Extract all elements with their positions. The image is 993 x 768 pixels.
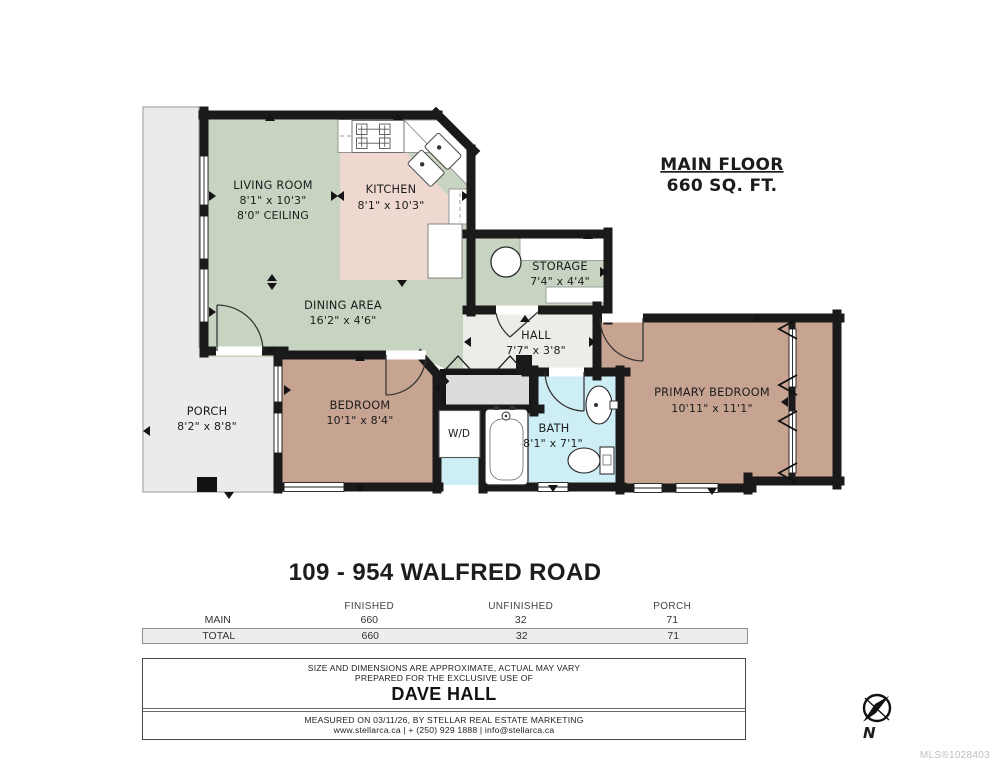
floorplan-drawing: LIVING ROOM 8'1" x 10'3" 8'0" CEILING KI… bbox=[0, 0, 993, 555]
mls-watermark: MLS®1028403 bbox=[920, 750, 990, 761]
primary-bedroom-dims: 10'11" x 11'1" bbox=[671, 402, 752, 415]
porch-label: PORCH bbox=[187, 405, 228, 418]
prepared-for-box: SIZE AND DIMENSIONS ARE APPROXIMATE, ACT… bbox=[142, 658, 746, 740]
row-label: TOTAL bbox=[143, 630, 295, 643]
prepared-for-text: PREPARED FOR THE EXCLUSIVE USE OF bbox=[143, 673, 745, 683]
table-row-main: MAIN 660 32 71 bbox=[142, 614, 748, 627]
cell-total-unfinished: 32 bbox=[446, 630, 598, 643]
dining-area-dims: 16'2" x 4'6" bbox=[309, 314, 376, 327]
floor-area: 660 SQ. FT. bbox=[667, 176, 778, 196]
area-table-header: FINISHED UNFINISHED PORCH bbox=[142, 600, 748, 613]
page-title: 109 - 954 WALFRED ROAD bbox=[142, 559, 748, 587]
contact-text: www.stellarca.ca | + (250) 929 1888 | in… bbox=[143, 725, 745, 735]
floorplan-page: LIVING ROOM 8'1" x 10'3" 8'0" CEILING KI… bbox=[0, 0, 993, 768]
storage-label: STORAGE bbox=[532, 260, 588, 273]
living-room-ceiling: 8'0" CEILING bbox=[237, 209, 309, 222]
cell-total-finished: 660 bbox=[295, 630, 447, 643]
floor-title: MAIN FLOOR bbox=[660, 155, 783, 175]
cell-main-finished: 660 bbox=[294, 614, 446, 627]
wd-label: W/D bbox=[448, 428, 470, 440]
bedroom-label: BEDROOM bbox=[330, 399, 391, 412]
stove-icon bbox=[352, 121, 404, 153]
col-finished: FINISHED bbox=[294, 600, 446, 613]
table-row-total: TOTAL 660 32 71 bbox=[142, 628, 748, 644]
area-table: FINISHED UNFINISHED PORCH MAIN 660 32 71… bbox=[142, 600, 748, 644]
toilet-icon bbox=[568, 447, 614, 474]
storage-shelf-bottom bbox=[546, 287, 604, 303]
living-room-dims: 8'1" x 10'3" bbox=[239, 194, 306, 207]
compass-icon: N bbox=[851, 690, 905, 748]
client-name: DAVE HALL bbox=[143, 684, 745, 705]
kitchen-label: KITCHEN bbox=[366, 183, 417, 196]
storage-shelf-top bbox=[520, 238, 604, 261]
bedroom-dims: 10'1" x 8'4" bbox=[326, 414, 393, 427]
primary-bedroom-label: PRIMARY BEDROOM bbox=[654, 386, 770, 399]
storage-dims: 7'4" x 4'4" bbox=[530, 275, 590, 288]
dining-area-label: DINING AREA bbox=[304, 299, 382, 312]
porch-dims: 8'2" x 8'8" bbox=[177, 420, 237, 433]
kitchen-dims: 8'1" x 10'3" bbox=[357, 199, 424, 212]
cell-main-unfinished: 32 bbox=[445, 614, 597, 627]
compass-north-label: N bbox=[863, 724, 876, 742]
cell-total-porch: 71 bbox=[598, 630, 750, 643]
hall-label: HALL bbox=[521, 329, 551, 342]
disclaimer-text: SIZE AND DIMENSIONS ARE APPROXIMATE, ACT… bbox=[143, 663, 745, 673]
bath-dims: 8'1" x 7'1" bbox=[523, 437, 583, 450]
measured-text: MEASURED ON 03/11/26, BY STELLAR REAL ES… bbox=[143, 715, 745, 725]
floor-header: MAIN FLOOR 660 SQ. FT. bbox=[660, 155, 783, 196]
living-room-label: LIVING ROOM bbox=[233, 179, 313, 192]
bathtub-icon bbox=[485, 406, 528, 485]
hall-closet bbox=[443, 372, 532, 409]
hall-dims: 7'7" x 3'8" bbox=[506, 344, 566, 357]
footer-divider bbox=[143, 708, 745, 712]
cell-main-porch: 71 bbox=[597, 614, 749, 627]
col-unfinished: UNFINISHED bbox=[445, 600, 597, 613]
water-tank-icon bbox=[491, 247, 521, 277]
bath-label: BATH bbox=[539, 422, 570, 435]
porch-step bbox=[197, 477, 217, 492]
fridge-icon bbox=[428, 224, 462, 278]
row-label: MAIN bbox=[142, 614, 294, 627]
col-porch: PORCH bbox=[597, 600, 749, 613]
